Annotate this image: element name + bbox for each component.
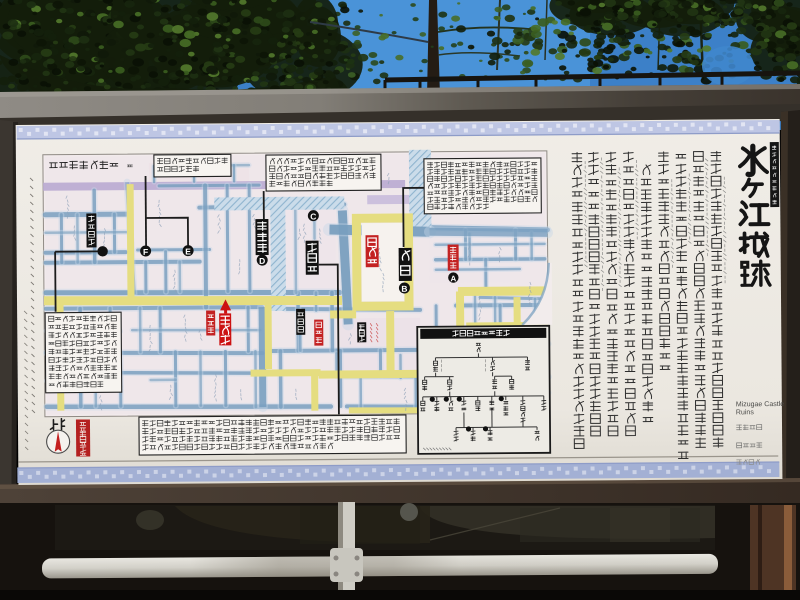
svg-text:Mizugae Castle: Mizugae Castle: [736, 401, 784, 408]
svg-text:C: C: [310, 211, 316, 221]
svg-text:A: A: [450, 274, 456, 283]
svg-text:Ruins: Ruins: [736, 409, 754, 416]
svg-text:F: F: [143, 247, 148, 257]
svg-text:D: D: [259, 256, 265, 266]
svg-text:B: B: [401, 284, 407, 294]
svg-text:E: E: [185, 246, 191, 256]
